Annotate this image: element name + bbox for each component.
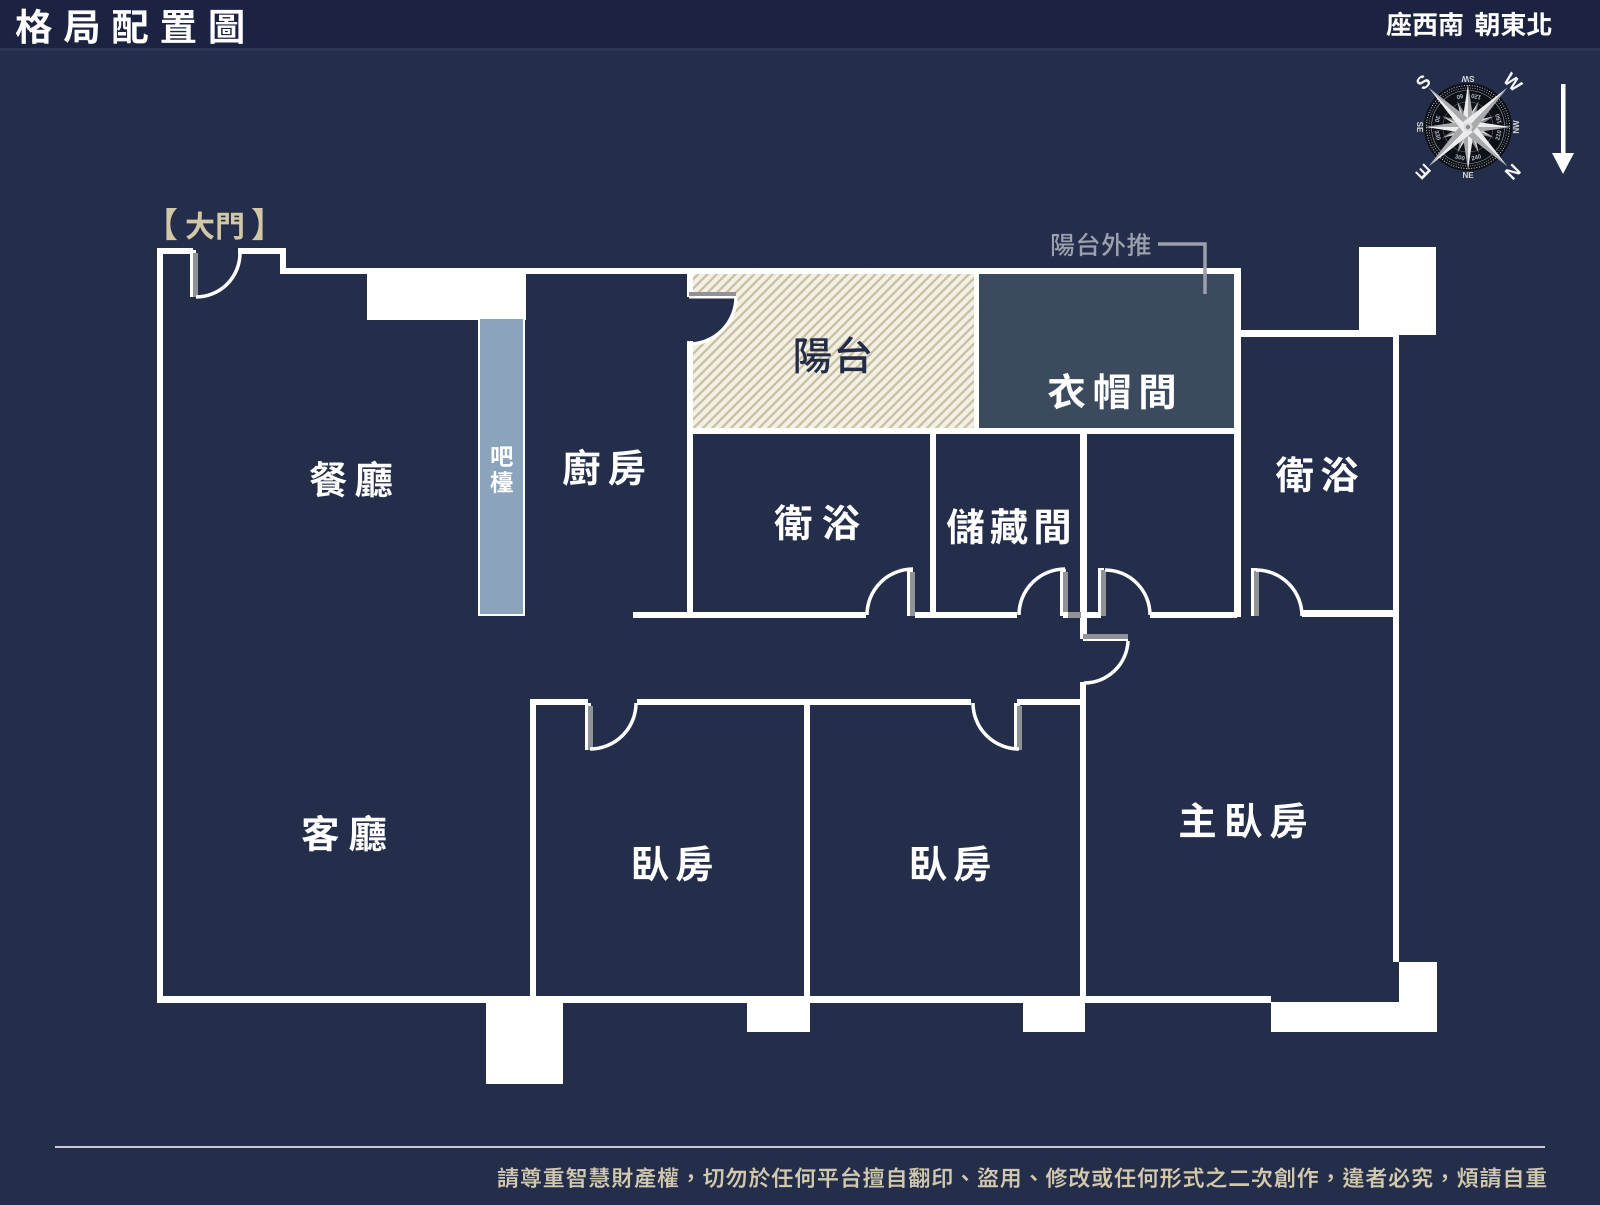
svg-text:SE: SE [1415, 122, 1424, 133]
svg-text:NE: NE [1462, 171, 1474, 180]
svg-text:NW: NW [1512, 120, 1521, 134]
svg-text:SW: SW [1461, 74, 1474, 83]
